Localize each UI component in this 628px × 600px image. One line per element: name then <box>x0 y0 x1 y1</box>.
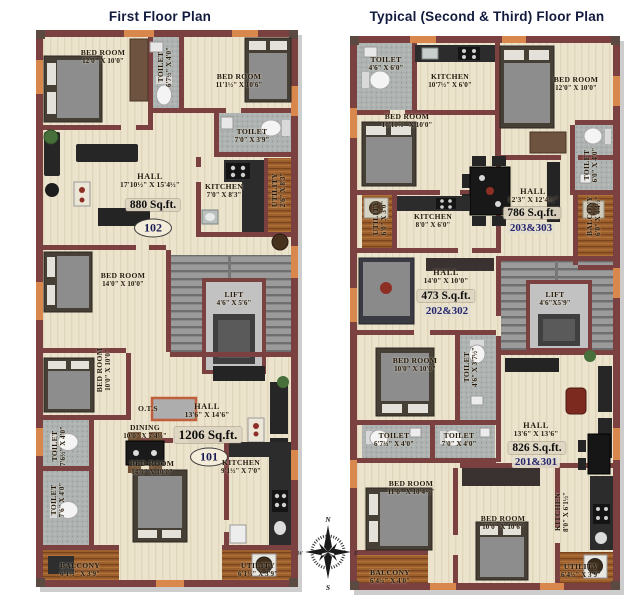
room-label-toilet: TOILET4'6" X 6'0" <box>369 56 404 72</box>
room-dims: 6'7½" X 4'0" <box>374 440 414 448</box>
room-label-bedroom: BED ROOM12'0" X 10'0" <box>81 49 125 65</box>
bed <box>245 38 291 102</box>
room-label-kitchen: KITCHEN7'0" X 8'3" <box>205 183 243 199</box>
area-badge: 786 S.q.ft. <box>503 207 560 219</box>
room-label-dining: DINING10'0" X 7'4½" <box>123 424 167 440</box>
room-label-lift: LIFT4'6"X5'9" <box>539 291 570 307</box>
room-label-ots: O.T.S <box>138 405 158 414</box>
unit-number-badge: 203&303 <box>507 222 555 234</box>
bed <box>44 56 102 122</box>
compass-west-label: W <box>297 550 303 557</box>
room-dims: 4'6" X 6'0" <box>369 64 404 72</box>
room-label-toilet: TOILET7'0" X 3'9" <box>235 128 270 144</box>
room-label-utility: UTILITY6'4½" X 3'9" <box>561 563 601 579</box>
room-dims: 8'0" X 6'0" <box>414 221 452 229</box>
floor-plan-sheet: First Floor Plan Typical (Second & Third… <box>0 0 628 600</box>
compass-south-label: S <box>326 583 330 592</box>
room-label-bedroom: BED ROOM10'0" X 10'6" <box>481 515 525 531</box>
room-label-toilet: TOILET4'6" X 3'7½" <box>463 347 479 387</box>
room-dims: 6'4½" X 3'9" <box>561 571 601 579</box>
room-dims: 10'0" X 7'4½" <box>123 432 167 440</box>
room-dims: 10'0" X 10'0" <box>104 348 112 392</box>
room-label-utility: UTILITY6'0" X 3'0" <box>372 201 388 236</box>
room-label-balcony: BALCONY6'0" X 4'4½" <box>586 196 602 236</box>
tv-unit <box>213 366 265 381</box>
room-label-bedroom: BED ROOM12'0" X 10'0" <box>554 76 598 92</box>
room-label-bedroom: BED ROOM10'0" X 10'0" <box>96 348 112 392</box>
area-badge: 880 Sq.ft. <box>126 199 180 211</box>
room-dims: 6'1½" X 3'9" <box>238 570 278 578</box>
plant <box>44 130 58 144</box>
room-dims: 10'10½" X 10'0" <box>382 121 433 129</box>
room-label-hall: HALL14'0" X 10'0" <box>424 268 469 286</box>
room-dims: 6'0" X 3'0" <box>380 201 388 236</box>
room-label-toilet: TOILET7'0" X 4'0" <box>442 432 477 448</box>
bed <box>500 46 554 128</box>
room-dims: 12'3" X 12'4½" <box>508 196 558 205</box>
area-badge: 1206 Sq.ft. <box>175 427 242 443</box>
bed <box>44 358 94 412</box>
bed <box>359 258 414 324</box>
room-dims: 4'6" X 3'7½" <box>471 347 479 387</box>
room-dims: 10'7½" X 6'0" <box>428 81 472 89</box>
room-label-toilet: TOILET7'6" X 4'0" <box>50 483 66 518</box>
room-dims: 11'0" X 10'4½" <box>388 488 435 496</box>
room-label-hall: HALL13'6" X 14'6" <box>185 402 230 420</box>
compass-rose: N S E W <box>297 515 358 592</box>
room-label-kitchen: KITCHEN10'7½" X 6'0" <box>428 73 472 89</box>
room-dims: 12'0" X 10'0" <box>81 57 125 65</box>
side-table <box>248 418 264 442</box>
room-dims: 7'6" X 4'0" <box>58 483 66 518</box>
sofa <box>270 382 288 434</box>
unit-number-badge: 202&302 <box>423 305 471 317</box>
room-dims: 10'0" X 10'0" <box>393 365 437 373</box>
area-badge: 826 S.q.ft. <box>508 442 565 454</box>
room-name: O.T.S <box>138 405 158 414</box>
floor-plan-drawing: N S E W <box>0 0 628 600</box>
room-label-hall: HALL12'3" X 12'4½" <box>508 187 558 205</box>
room-dims: 17'10½" X 15'4½" <box>120 181 180 190</box>
room-dims: 8'0" X 6'1½" <box>562 492 570 532</box>
first-floor-plan <box>36 30 302 592</box>
room-label-toilet: TOILET6'7½" X 4'0" <box>374 432 414 448</box>
room-dims: 7'0" X 8'3" <box>205 191 243 199</box>
room-dims: 6'4½" X 4'0" <box>370 577 410 585</box>
kitchen-counter <box>590 476 613 550</box>
room-label-toilet: TOILET7'6½" X 4'0" <box>51 426 67 466</box>
lift-car-inner <box>543 319 575 341</box>
room-dims: 13'6" X 13'6" <box>514 430 559 439</box>
unit-number-badge: 201&301 <box>512 456 560 468</box>
room-dims: 4'6" X 5'6" <box>217 299 252 307</box>
kitchen-counter <box>397 196 470 211</box>
compass-north-label: N <box>324 515 331 524</box>
room-label-bedroom: BED ROOM14'0" X 10'0" <box>101 272 145 288</box>
room-dims: 9'1½" X 7'0" <box>221 467 261 475</box>
room-label-kitchen: KITCHEN8'0" X 6'1½" <box>554 492 570 532</box>
room-label-bedroom: BED ROOM11'0" X 10'4½" <box>388 480 435 496</box>
room-dims: 14'0" X 10'0" <box>101 280 145 288</box>
room-dims: 7'0" X 3'9" <box>235 136 270 144</box>
room-dims: 7'0" X 4'0" <box>442 440 477 448</box>
plant <box>584 350 596 362</box>
room-dims: 14'0" X 10'0" <box>424 277 469 286</box>
room-dims: 4'6"X5'9" <box>539 299 570 307</box>
room-dims: 6'1½" X 3'9" <box>60 570 100 578</box>
room-dims: 12'0" X 10'0" <box>554 84 598 92</box>
armchair <box>566 388 586 414</box>
room-dims: 6'0" X 4'4½" <box>594 196 602 236</box>
room-dims: 10'0" X 10'6" <box>481 523 525 531</box>
sofa <box>598 366 612 412</box>
utility-sink <box>272 234 288 250</box>
area-badge: 473 S.q.ft. <box>417 290 474 302</box>
room-label-toilet: TOILET6'7½" X 4'0" <box>157 47 173 87</box>
bed <box>366 488 432 550</box>
tv-unit <box>505 358 559 372</box>
bed <box>362 122 416 186</box>
room-label-bedroom: BED ROOM10'0" X 10'0" <box>393 357 437 373</box>
room-label-bedroom: BED ROOM14'0" X 10'0" <box>130 460 174 476</box>
compass-star <box>305 525 351 579</box>
room-label-toilet: TOILET6'0" X 4'0" <box>583 148 599 183</box>
room-label-balcony: BALCONY6'1½" X 3'9" <box>60 562 100 578</box>
room-dims: 7'6½" X 4'0" <box>59 426 67 466</box>
room-label-bedroom: BED ROOM11'1½" X 10'6" <box>216 73 263 89</box>
wash-basin <box>221 117 233 129</box>
compass-east-label: E <box>353 550 358 557</box>
room-dims: 6'0" X 4'0" <box>591 148 599 183</box>
room-dims: 13'6" X 14'6" <box>185 411 230 420</box>
room-label-bedroom: BED ROOM10'10½" X 10'0" <box>382 113 433 129</box>
wardrobe <box>462 468 540 486</box>
room-dims: 14'0" X 10'0" <box>130 468 174 476</box>
room-label-balcony: BALCONY6'4½" X 4'0" <box>370 569 410 585</box>
room-label-kitchen: KITCHEN8'0" X 6'0" <box>414 213 452 229</box>
wardrobe <box>530 132 566 153</box>
room-label-lift: LIFT4'6" X 5'6" <box>217 291 252 307</box>
room-label-hall: HALL13'6" X 13'6" <box>514 421 559 439</box>
room-dims: 11'1½" X 10'6" <box>216 81 263 89</box>
wardrobe <box>130 39 148 101</box>
bed <box>133 470 187 542</box>
room-dims: 2'6" X 8'3" <box>279 173 287 208</box>
room-label-hall: HALL17'10½" X 15'4½" <box>120 172 180 190</box>
bed <box>44 252 92 312</box>
room-label-utility: UTILITY2'6" X 8'3" <box>271 173 287 208</box>
kitchen-counter <box>415 45 495 62</box>
plant <box>277 376 289 388</box>
unit-number-badge: 102 <box>134 219 172 238</box>
room-label-kitchen: KITCHEN9'1½" X 7'0" <box>221 459 261 475</box>
room-label-utility: UTILITY6'1½" X 3'9" <box>238 562 278 578</box>
room-dims: 6'7½" X 4'0" <box>165 47 173 87</box>
